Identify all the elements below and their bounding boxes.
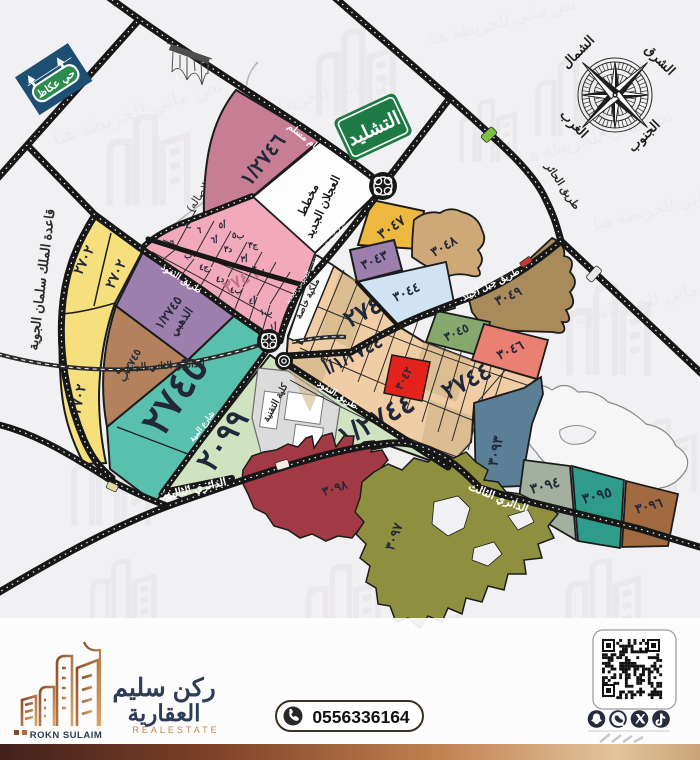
svg-text:ركن سليم: ركن سليم [112, 674, 215, 703]
svg-text:ب١: ب١ [260, 307, 272, 317]
svg-text:أ٤: أ٤ [249, 294, 256, 306]
svg-text:د٣: د٣ [224, 244, 232, 254]
svg-text:أ٥: أ٥ [219, 218, 226, 230]
svg-text:ج٣: ج٣ [248, 240, 258, 251]
svg-text:٦: ٦ [197, 225, 202, 235]
svg-text:ب٥: ب٥ [232, 230, 244, 240]
svg-text:ج٤: ج٤ [199, 262, 209, 273]
svg-text:أ٣: أ٣ [241, 252, 248, 264]
svg-text:ROKN SULAIM: ROKN SULAIM [30, 730, 103, 741]
svg-text:أ٦: أ٦ [211, 233, 218, 245]
svg-text:REALESTATE: REALESTATE [132, 725, 219, 735]
svg-text:العقارية: العقارية [128, 700, 201, 728]
svg-text:0556336164: 0556336164 [312, 707, 410, 727]
